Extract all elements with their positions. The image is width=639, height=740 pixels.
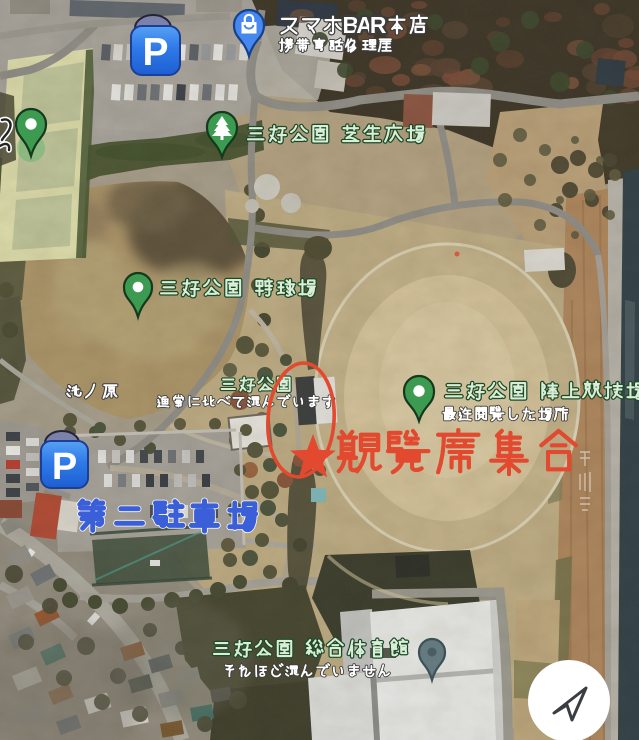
svg-text:P: P (52, 446, 77, 488)
svg-text:R: R (370, 12, 387, 38)
svg-text:P: P (142, 31, 168, 74)
